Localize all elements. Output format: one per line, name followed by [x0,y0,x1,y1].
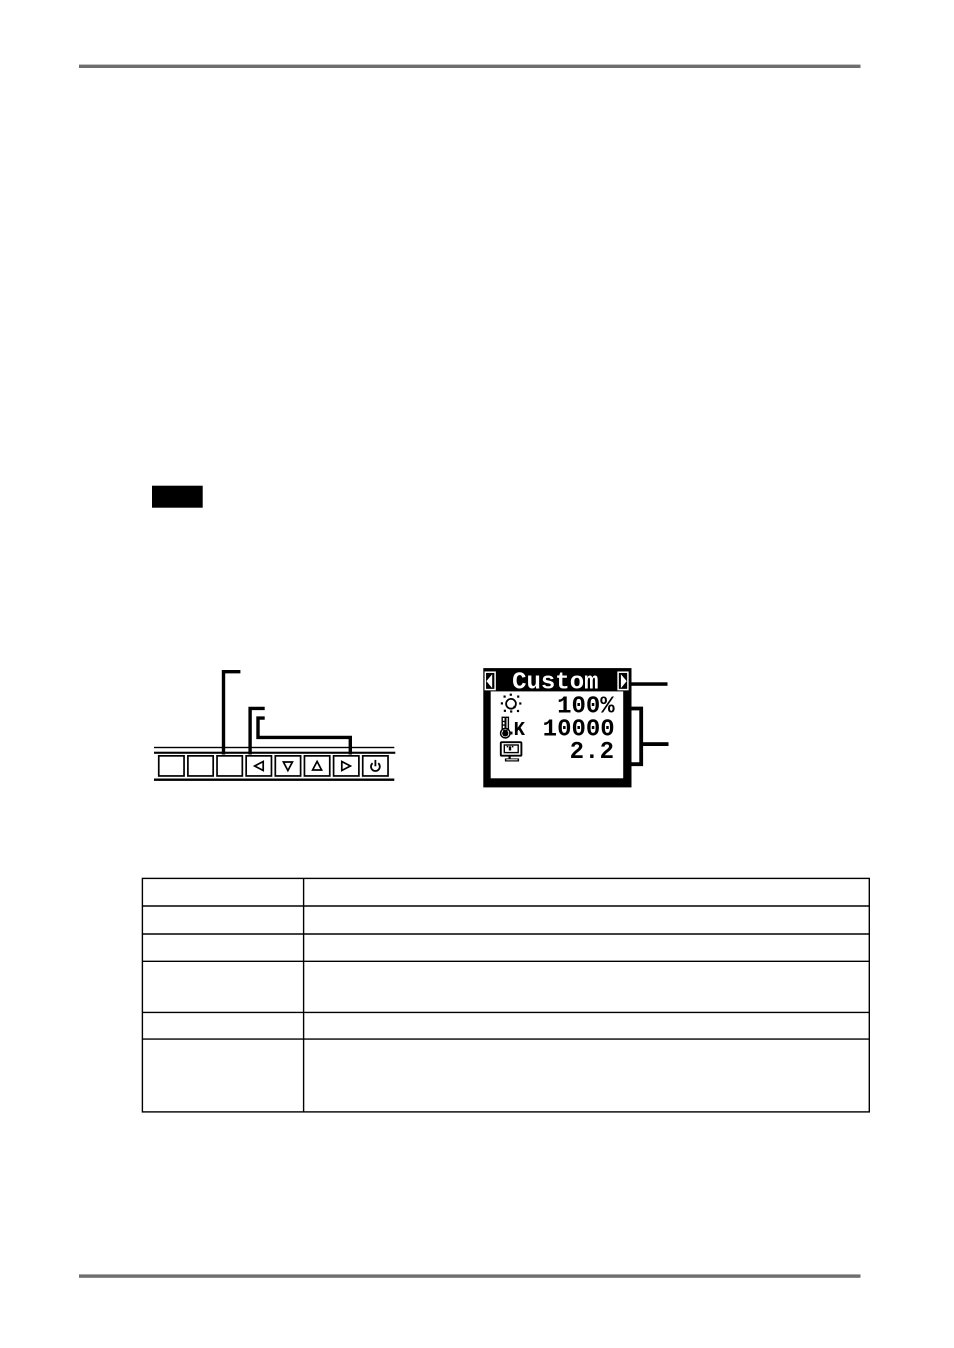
svg-text:2.2: 2.2 [570,739,615,766]
svg-text:Custom: Custom [512,669,598,696]
svg-text:K: K [514,719,526,741]
